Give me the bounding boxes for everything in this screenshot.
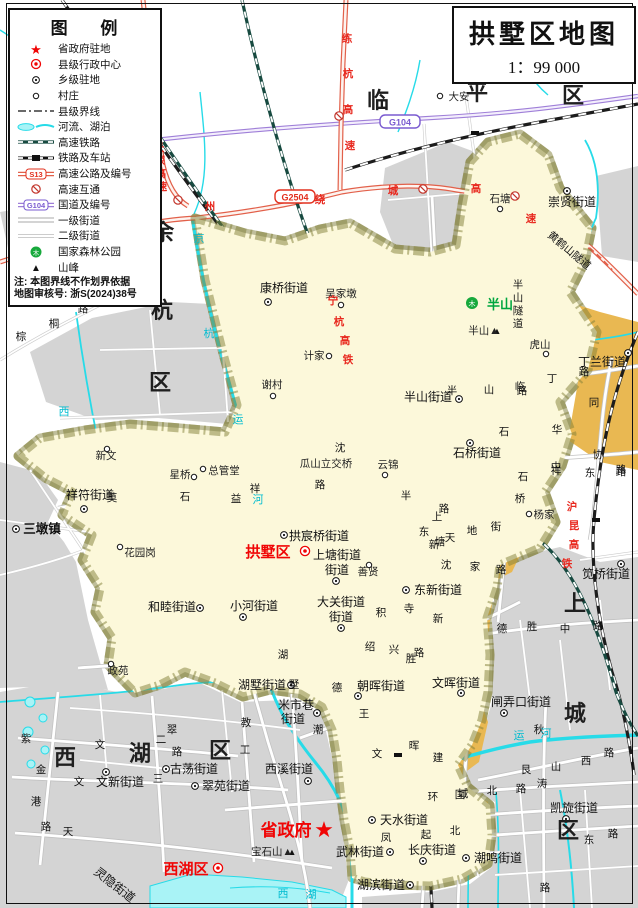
map-label: 省政府: [260, 820, 312, 840]
map-label: 绕: [315, 193, 326, 206]
town-marker: [407, 882, 414, 889]
map-label: 新: [433, 612, 444, 625]
map-label: 文: [74, 775, 85, 788]
town-marker: [13, 526, 20, 533]
map-label: 金: [36, 763, 47, 776]
map-label: 山: [513, 292, 524, 304]
map-label: 杭: [334, 315, 345, 328]
map-label: 湖: [278, 649, 289, 661]
village-marker: [497, 206, 502, 211]
town-marker: [163, 766, 170, 773]
map-label: 胜: [527, 621, 538, 633]
map-label: 高: [340, 334, 351, 347]
village-icon: [14, 89, 58, 103]
map-label: 区: [209, 738, 231, 763]
map-label: 州: [204, 201, 216, 213]
map-label: 寺: [404, 603, 415, 615]
map-label: 笕桥街道: [582, 566, 630, 581]
map-label: 高: [343, 103, 354, 116]
map-label: 路: [496, 563, 507, 576]
map-label: 河: [541, 727, 552, 740]
map-label: 京: [194, 231, 205, 245]
village-marker: [270, 393, 275, 398]
boundary-icon: [14, 104, 58, 118]
map-label: 石: [518, 471, 529, 483]
map-label: 街道: [281, 712, 305, 726]
legend-item-label: 国道及编号: [58, 197, 111, 212]
map-label: 道: [513, 317, 524, 330]
map-label: 路: [593, 619, 604, 632]
map-label: 东: [584, 833, 595, 846]
map-label: 港: [31, 796, 42, 808]
map-label: 城: [564, 701, 586, 726]
legend-item-label: 省政府驻地: [58, 41, 111, 56]
map-label: 大关街道: [317, 595, 365, 609]
map-label: 区: [149, 370, 171, 395]
legend-item-label: 二级街道: [58, 228, 100, 243]
map-label: 路: [616, 463, 627, 476]
map-label: 铁: [343, 353, 354, 366]
map-label: 绍: [365, 640, 376, 653]
town-marker: [564, 188, 571, 195]
map-label: 隧: [513, 304, 524, 317]
town-marker: [338, 625, 345, 632]
road-number-badge: G104: [380, 115, 420, 128]
map-label: 丁: [547, 373, 558, 385]
map-label: 东: [585, 466, 596, 479]
legend-item: 高速互通: [14, 181, 156, 197]
legend-item-label: 县级界线: [58, 104, 100, 119]
map-label: 紫: [21, 733, 32, 745]
map-label: 国: [455, 789, 466, 801]
legend-item-label: 乡级驻地: [58, 72, 100, 87]
legend-title: 图 例: [14, 14, 156, 39]
legend-note-2: 地图审核号: 浙S(2024)38号: [14, 289, 156, 302]
legend-item: 二级街道: [14, 228, 156, 244]
map-label: 街道: [329, 610, 353, 624]
map-label: 湖滨街道: [357, 877, 405, 892]
map-label: 二: [156, 734, 167, 746]
map-label: 沈: [335, 441, 346, 454]
title-box: 拱墅区地图 1：99 000: [452, 6, 636, 84]
map-label: 天水街道: [380, 813, 428, 827]
map-label: 山: [551, 761, 562, 773]
map-label: 宁: [328, 294, 339, 307]
map-label: 虎山: [530, 339, 551, 351]
map-label: 谢村: [262, 378, 283, 391]
legend-item-label: 高速公路及编号: [58, 166, 132, 181]
map-label: 德: [332, 681, 343, 694]
town-marker: [355, 693, 362, 700]
map-label: 天: [63, 826, 74, 838]
map-label: 桐: [49, 317, 60, 330]
map-label: 高: [471, 182, 482, 195]
map-label: 星桥: [170, 469, 191, 481]
legend-item-label: 国家森林公园: [58, 244, 121, 259]
village-marker: [200, 466, 205, 471]
map-label: 路: [516, 782, 527, 795]
map-label: 石: [180, 491, 191, 503]
road1-icon: [14, 213, 58, 227]
map-label: 凤: [381, 832, 392, 844]
rail-icon: [14, 151, 58, 165]
map-label: 路: [172, 745, 183, 758]
map-label: 翠: [167, 724, 178, 736]
map-label: 协: [593, 448, 604, 461]
map-label: 北: [450, 825, 461, 837]
town-icon: [14, 73, 58, 87]
map-label: 西: [581, 755, 592, 767]
map-label: 城: [388, 184, 399, 197]
town-marker: [240, 614, 247, 621]
legend-item-label: 县级行政中心: [58, 57, 121, 72]
legend-item: 村庄: [14, 88, 156, 104]
map-label: 墅: [289, 679, 300, 691]
map-label: 中: [551, 460, 562, 473]
map-label: 大安: [449, 90, 470, 103]
map-label: 高: [569, 538, 580, 551]
map-label: 长庆街道: [408, 843, 456, 857]
legend-item-label: 高速互通: [58, 182, 100, 197]
town-marker: [197, 605, 204, 612]
map-label: 华: [552, 423, 563, 436]
legend-item: ▲山峰: [14, 259, 156, 275]
map-label: 路: [608, 827, 619, 840]
map-label: 涛: [537, 777, 548, 790]
map-label: 塘: [435, 535, 446, 548]
map-label: 沈: [441, 558, 452, 571]
map-label: 路: [414, 646, 425, 659]
map-label: 石桥街道: [453, 446, 501, 460]
village-marker: [326, 353, 331, 358]
map-label: 同: [589, 397, 600, 409]
map-label: 文: [95, 738, 106, 751]
legend-item: 河流、湖泊: [14, 119, 156, 135]
map-label: 朝晖街道: [357, 679, 405, 693]
village-marker: [543, 351, 548, 356]
svg-text:★: ★: [30, 42, 42, 56]
map-label: 路: [540, 881, 551, 894]
map-label: 益: [231, 492, 242, 505]
map-label: 石塘: [490, 192, 511, 205]
map-label: 古荡街道: [170, 761, 218, 776]
town-marker: [458, 690, 465, 697]
map-label: 杨家: [534, 508, 555, 521]
provincial-gov-star: ★: [314, 817, 334, 842]
map-label: 上: [432, 511, 443, 523]
map-label: 山: [484, 384, 495, 396]
map-label: 潮鸣街道: [474, 850, 522, 865]
map-label: 东: [419, 525, 430, 538]
map-label: 文: [372, 747, 383, 760]
legend-item-label: 村庄: [58, 88, 79, 103]
town-marker: [281, 532, 288, 539]
town-marker: [81, 506, 88, 513]
map-label: 西: [59, 406, 70, 418]
town-marker: [192, 783, 199, 790]
map-label: 昆: [569, 520, 580, 532]
map-label: 瓜山立交桥: [300, 457, 353, 470]
map-label: 半山街道: [404, 390, 452, 404]
map-label: 工: [240, 744, 251, 756]
map-label: 拱墅区: [245, 543, 290, 561]
map-label: 计家: [304, 349, 325, 362]
interchange-marker: [419, 185, 427, 193]
legend-item-label: 一级街道: [58, 213, 100, 228]
legend-item: 铁路及车站: [14, 150, 156, 166]
svg-text:S13: S13: [29, 170, 42, 179]
rail-station-marker: [394, 753, 402, 757]
map-label: 湖墅街道: [238, 677, 286, 692]
legend-item-label: 铁路及车站: [58, 150, 111, 165]
town-marker: [501, 710, 508, 717]
hsr-icon: [14, 135, 58, 149]
map-label: 莫: [107, 492, 118, 504]
map-label: 运: [514, 729, 525, 742]
map-label: 三墩镇: [23, 521, 61, 536]
map-label: 艮: [521, 764, 532, 776]
interchange-icon: [14, 182, 58, 196]
map-label: 文晖街道: [432, 675, 480, 690]
map-label: 速: [345, 139, 356, 152]
map-label: 半: [401, 489, 412, 502]
town-marker: [420, 858, 427, 865]
map-label: 家: [470, 560, 481, 573]
map-label: 起: [421, 829, 432, 841]
town-marker: [305, 778, 312, 785]
legend-item: 县级界线: [14, 103, 156, 119]
river-icon: [14, 120, 58, 134]
village-marker: [191, 474, 196, 479]
legend-item-label: 山峰: [58, 260, 79, 275]
map-label: 上塘街道: [313, 547, 361, 562]
map-label: 三: [153, 773, 164, 785]
map-label: 杭: [343, 67, 354, 80]
village-marker: [117, 544, 122, 549]
legend-item: 高速铁路: [14, 135, 156, 151]
village-marker: [338, 302, 343, 307]
map-label: 环: [428, 791, 439, 803]
legend-item: 县级行政中心: [14, 57, 156, 73]
legend-item: 木国家森林公园: [14, 244, 156, 260]
legend-item: ★省政府驻地: [14, 41, 156, 57]
map-label: 运: [233, 413, 244, 426]
legend-item: 一级街道: [14, 213, 156, 229]
svg-text:G2504: G2504: [281, 193, 308, 203]
map-label: 中: [560, 622, 571, 635]
star-icon: ★: [14, 42, 58, 56]
peak-icon: ▲: [14, 260, 58, 274]
map-label: 善贤: [358, 565, 379, 578]
town-marker: [265, 299, 272, 306]
map-label: 崇贤街道: [548, 195, 596, 209]
map-label: 路: [579, 365, 590, 378]
map-label: 半山: [487, 297, 513, 312]
svg-text:G104: G104: [389, 118, 411, 128]
county-seat-marker: [213, 863, 222, 872]
interchange-marker: [174, 196, 182, 204]
map-label: 建: [433, 751, 444, 764]
legend-note-1: 注: 本图界线不作划界依据: [14, 277, 156, 290]
map-label: 路: [315, 478, 326, 491]
village-marker: [437, 93, 442, 98]
map-label: 上: [564, 591, 586, 616]
map-title: 拱墅区地图: [454, 14, 634, 51]
expressway-icon: S13: [14, 167, 58, 181]
town-marker: [314, 710, 321, 717]
map-label: 地: [467, 524, 478, 537]
map-label: 北: [487, 785, 498, 797]
town-marker: [387, 849, 394, 856]
map-label: 临: [515, 380, 526, 393]
map-label: 河: [253, 493, 264, 506]
map-label: 云锦: [378, 458, 399, 471]
map-label: 路: [41, 820, 52, 833]
map-label: 半山▲: [468, 324, 499, 337]
map-label: 东新街道: [414, 582, 462, 597]
map-label: 晖: [409, 740, 420, 752]
map-label: 区: [557, 818, 579, 843]
map-label: 教: [241, 716, 252, 729]
map-label: 区: [562, 83, 584, 108]
town-marker: [333, 578, 340, 585]
legend-item-label: 河流、湖泊: [58, 119, 111, 134]
map-label: 街: [491, 520, 502, 533]
map-label: 王: [359, 708, 370, 720]
map-label: 棕: [16, 330, 27, 343]
map-label: 铁: [562, 557, 573, 570]
map-label: 总管堂: [208, 464, 240, 477]
map-label: 闸弄口街道: [491, 695, 551, 709]
map-label: 西湖区: [163, 861, 208, 878]
map-label: 米市巷: [278, 697, 314, 712]
map-scale: 1：99 000: [454, 53, 634, 78]
map-label: 天: [445, 532, 456, 544]
map-label: 练: [342, 32, 353, 45]
map-label: 石: [499, 426, 510, 438]
rail-station-marker: [471, 131, 479, 135]
village-marker: [382, 472, 387, 477]
map-label: 小河街道: [230, 599, 278, 613]
legend-item: 乡级驻地: [14, 72, 156, 88]
map-label: 沪: [567, 500, 578, 513]
map-label: 西: [54, 745, 76, 770]
map-label: 凯旋街道: [550, 801, 598, 815]
town-marker: [403, 587, 410, 594]
road-number-badge: G2504: [275, 190, 315, 203]
map-label: 宝石山▲: [251, 845, 293, 858]
forest-icon: 木: [14, 245, 58, 259]
legend-item: G104国道及编号: [14, 197, 156, 213]
road2-icon: [14, 229, 58, 243]
map-label: 兴: [389, 644, 400, 656]
legend-item-label: 高速铁路: [58, 135, 100, 150]
map-label: 湖: [306, 888, 317, 901]
village-marker: [526, 511, 531, 516]
svg-text:木: 木: [33, 248, 40, 257]
map-label: 半: [447, 384, 458, 397]
county-icon: [14, 57, 58, 71]
svg-text:木: 木: [469, 299, 476, 308]
map-label: 翠苑街道: [202, 779, 250, 793]
map-label: 临: [367, 88, 389, 113]
map-label: 拱宸桥街道: [289, 528, 349, 543]
map-label: 湖: [129, 741, 151, 766]
county-seat-marker: [300, 546, 309, 555]
map-label: 街道: [325, 563, 349, 577]
map-label: 西: [278, 888, 289, 900]
legend-item: S13高速公路及编号: [14, 166, 156, 182]
national-icon: G104: [14, 198, 58, 212]
map-label: 速: [526, 212, 537, 225]
legend-panel: 图 例 ★省政府驻地县级行政中心乡级驻地村庄县级界线河流、湖泊高速铁路铁路及车站…: [8, 8, 162, 307]
forest-park-marker: 木: [466, 297, 478, 309]
map-label: 潮: [313, 723, 324, 736]
town-marker: [369, 817, 376, 824]
map-page: ★▲▲木 余杭区临平区西湖区上城区拱墅区西湖区省政府崇贤街道康桥街道半山街道石桥…: [0, 0, 638, 908]
map-label: 新文: [96, 449, 117, 462]
map-label: 德: [497, 622, 508, 635]
map-label: 路: [604, 746, 615, 759]
svg-text:▲: ▲: [31, 263, 41, 274]
map-label: 积: [376, 607, 387, 619]
svg-text:G104: G104: [27, 201, 46, 210]
map-label: 杭: [204, 326, 215, 340]
map-label: 武林街道: [336, 845, 384, 859]
map-label: 桥: [515, 493, 526, 505]
map-label: 和睦街道: [148, 600, 196, 614]
map-label: 花园岗: [124, 546, 156, 559]
map-label: 康桥街道: [260, 280, 308, 295]
map-label: 西溪街道: [265, 762, 313, 776]
interchange-marker: [511, 192, 519, 200]
rail-station-marker: [592, 518, 600, 522]
map-label: 政苑: [108, 664, 129, 677]
town-marker: [463, 855, 470, 862]
map-label: 文新街道: [96, 774, 144, 789]
map-label: 半: [513, 278, 524, 291]
